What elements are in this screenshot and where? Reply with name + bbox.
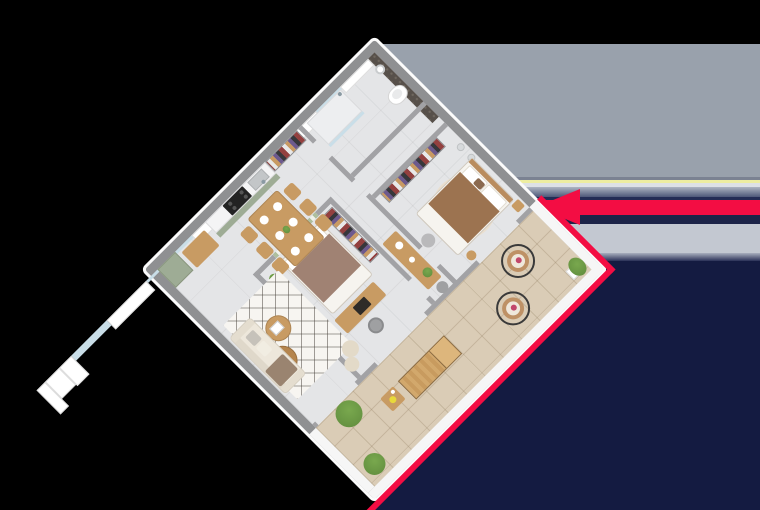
small-plate — [390, 389, 396, 395]
sideboard — [181, 230, 219, 268]
console-dish — [408, 255, 416, 263]
entry-closet — [265, 130, 307, 172]
table-frame-deco — [269, 320, 285, 336]
laptop — [353, 296, 372, 315]
sofa-pillow — [256, 340, 273, 357]
terrace-sliding-door — [107, 281, 156, 330]
terrace-sliding-door-glass — [71, 320, 111, 360]
vanity-sink — [455, 142, 466, 153]
kitchen-window — [340, 59, 375, 94]
console-plant — [420, 265, 434, 279]
burner — [232, 205, 238, 211]
console-bowl — [394, 240, 405, 251]
plate — [271, 200, 284, 213]
wall-bath-hall — [329, 156, 356, 183]
plate — [258, 214, 271, 227]
plate — [302, 231, 315, 244]
plate — [289, 245, 302, 258]
wall-nook-bed1 — [372, 122, 448, 198]
burner — [243, 194, 249, 200]
floorplan-scene — [0, 0, 760, 510]
flower-vase — [388, 395, 398, 405]
ottoman — [341, 354, 362, 375]
desk-chair — [365, 314, 388, 337]
shower-tray — [307, 89, 363, 145]
